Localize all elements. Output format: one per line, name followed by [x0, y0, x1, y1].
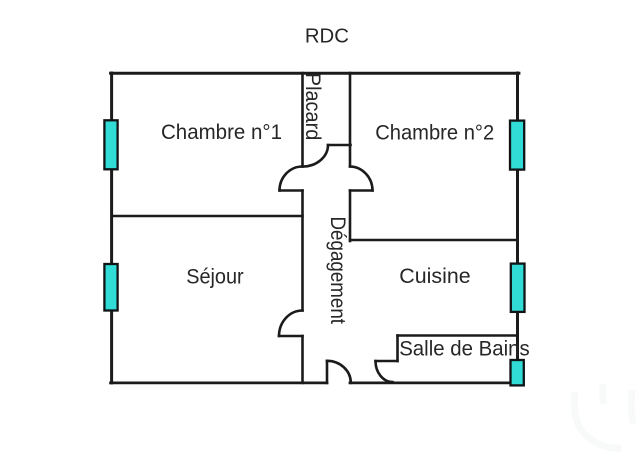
- svg-text:Dégagement: Dégagement: [326, 217, 349, 325]
- svg-text:Chambre n°1: Chambre n°1: [161, 120, 282, 144]
- svg-text:Salle de Bains: Salle de Bains: [399, 337, 530, 361]
- svg-text:Chambre n°2: Chambre n°2: [375, 121, 494, 145]
- svg-text:RDC: RDC: [305, 26, 349, 48]
- svg-text:Séjour: Séjour: [186, 265, 244, 289]
- svg-text:Placard: Placard: [301, 73, 324, 141]
- svg-text:Cuisine: Cuisine: [399, 264, 470, 288]
